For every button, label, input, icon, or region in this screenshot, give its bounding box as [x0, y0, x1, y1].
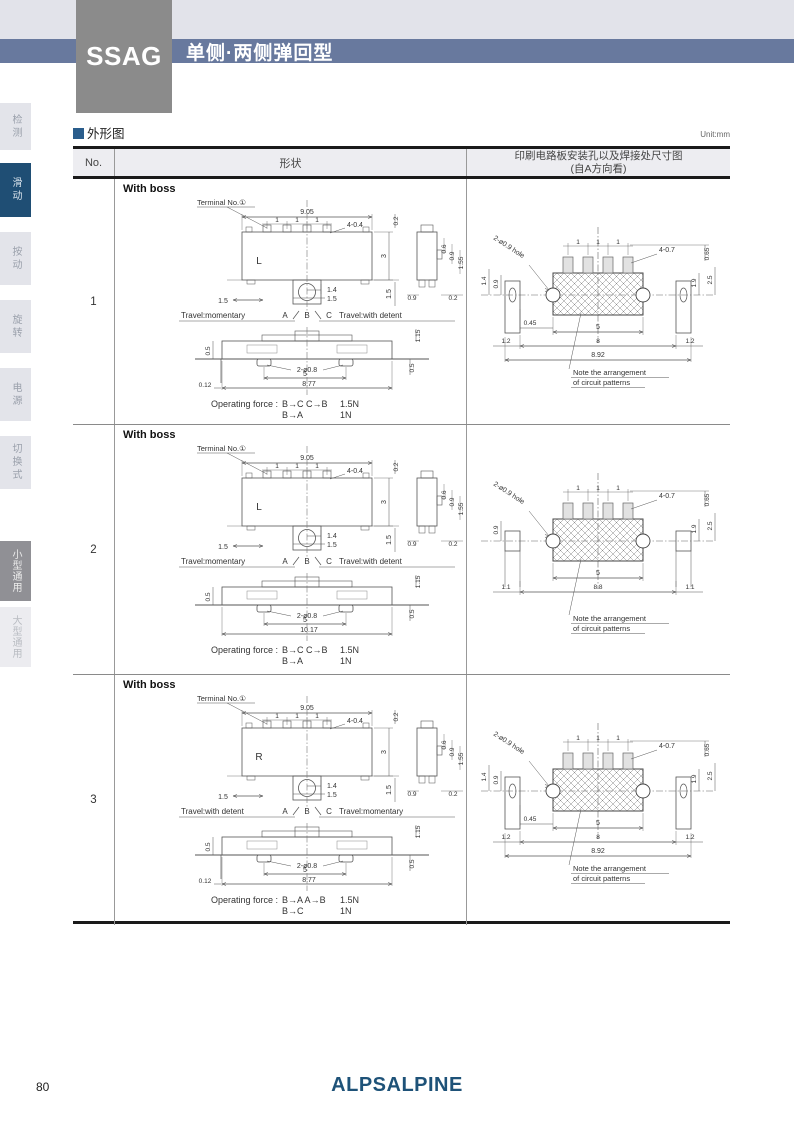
dim-label: 1: [576, 239, 580, 246]
force-moves-2: B→A: [282, 656, 340, 667]
dim-label: 4-0.7: [659, 493, 675, 500]
brand-logo: ALPSALPINE: [297, 1074, 497, 1097]
dim-label: 0.9: [407, 295, 416, 302]
outline-drawing-table: No. 形状 印刷电路板安装孔以及焊接处尺寸图 (自A方向看) 1 With b…: [73, 146, 730, 924]
dim-label: 1.5: [218, 298, 228, 305]
pcb-cell: 2-ø0.9 hole1114-0.70.650.91.92.551.18.81…: [467, 425, 730, 674]
tab-label: 滑动: [8, 177, 23, 203]
tab-label: 小型通用: [8, 549, 23, 593]
dim-label: 5: [303, 617, 307, 624]
dim-label: 1.5: [327, 296, 337, 303]
row-number: 3: [90, 794, 96, 806]
pcb-cell: 2-ø0.9 hole1114-0.70.651.40.91.92.50.455…: [467, 179, 730, 424]
dim-label: 1.2: [685, 338, 694, 345]
position-c: C: [326, 557, 332, 566]
force-prefix: Operating force :: [211, 645, 278, 666]
sidebar-tab-power: 电源: [0, 368, 31, 421]
dim-label: 8.77: [302, 877, 316, 884]
dim-label: 8.92: [591, 848, 605, 855]
dim-label: 1: [275, 713, 279, 720]
section-header: 外形图 Unit:mm: [73, 123, 730, 141]
position-b: B: [304, 311, 309, 320]
dim-label: 1: [295, 713, 299, 720]
dim-label: 5: [303, 371, 307, 378]
dim-label: 5: [303, 867, 307, 874]
travel-left-label: Travel:with detent: [181, 807, 245, 816]
dim-label: 1.5: [327, 542, 337, 549]
dim-label: 0.9: [407, 791, 416, 798]
dim-label: 1: [596, 735, 600, 742]
dim-label: 1: [295, 463, 299, 470]
force-moves-2: B→A: [282, 410, 340, 421]
sidebar-tab-push: 按动: [0, 232, 31, 285]
shape-cell: With boss Terminal No.①9.051114-0.40.2L3…: [115, 179, 467, 424]
dim-label: 1.5: [386, 785, 393, 795]
dim-label: 1.5: [386, 289, 393, 299]
dim-label: 0.45: [524, 320, 537, 327]
dim-label: 1.5: [386, 535, 393, 545]
unit-label: Unit:mm: [700, 130, 730, 139]
dim-label: 3: [381, 750, 388, 754]
table-row-2: 2 With boss Terminal No.①9.051114-0.40.2…: [73, 425, 730, 675]
dim-label: 0.5: [409, 859, 416, 868]
dim-label: 1.4: [481, 276, 488, 285]
bottom-view-drawing: 1.150.52-ø0.8510.170.5: [187, 571, 437, 645]
force-prefix: Operating force :: [211, 399, 278, 420]
front-view-drawing: Terminal No.①9.051114-0.40.2L31.41.51.51…: [167, 440, 467, 572]
dim-label: 4-0.7: [659, 743, 675, 750]
dim-label: 1.5: [218, 794, 228, 801]
tab-label: 按动: [8, 246, 23, 272]
dim-label: 0.65: [704, 247, 711, 260]
note-line2: of circuit patterns: [573, 874, 630, 883]
force-value-1: 1.5N: [340, 895, 359, 905]
dim-label: 1: [315, 713, 319, 720]
series-subtitle: 单侧·两侧弹回型: [186, 38, 333, 65]
travel-right-label: Travel:with detent: [339, 557, 403, 566]
dim-label: 0.2: [393, 712, 400, 721]
note-line1: Note the arrangement: [573, 614, 647, 623]
dim-label: 8: [596, 338, 600, 345]
orientation-letter: L: [256, 502, 262, 513]
front-side-view-svg: Terminal No.①9.051114-0.40.2L31.41.51.51…: [167, 440, 467, 572]
dim-label: 0.9: [493, 775, 500, 784]
position-c: C: [326, 807, 332, 816]
force-moves-2: B→C: [282, 906, 340, 917]
dim-label: 5: [596, 820, 600, 827]
dim-label: 4-0.4: [347, 222, 363, 229]
dim-label: 0.2: [448, 791, 457, 798]
position-a: A: [282, 557, 288, 566]
dim-label: 0.5: [205, 346, 212, 355]
position-c: C: [326, 311, 332, 320]
hole-label: 2-ø0.9 hole: [492, 481, 526, 506]
tab-label: 电源: [8, 382, 23, 408]
dim-label: 0.9: [449, 497, 456, 506]
section-marker-icon: [73, 128, 84, 139]
dim-label: 1.2: [685, 834, 694, 841]
bottom-view-svg: 1.150.52-ø0.858.770.120.5: [187, 821, 437, 895]
dim-label: 0.2: [448, 295, 457, 302]
dim-label: 2.5: [707, 521, 714, 530]
terminal-no-label: Terminal No.①: [197, 694, 246, 703]
note-line2: of circuit patterns: [573, 624, 630, 633]
note-line1: Note the arrangement: [573, 368, 647, 377]
row-number: 2: [90, 544, 96, 556]
dim-label: 1.5: [327, 792, 337, 799]
section-title: 外形图: [87, 127, 125, 141]
pcb-pattern-drawing: 2-ø0.9 hole1114-0.70.651.40.91.92.50.455…: [473, 713, 723, 893]
dim-label: 5: [596, 324, 600, 331]
dim-label: 3: [381, 254, 388, 258]
col-header-no: No.: [73, 149, 115, 176]
dim-label: 1: [576, 485, 580, 492]
dim-label: 0.2: [393, 462, 400, 471]
dim-label: 4-0.4: [347, 718, 363, 725]
dim-label: 0.9: [407, 541, 416, 548]
front-side-view-svg: Terminal No.①9.051114-0.40.2R31.41.51.51…: [167, 690, 467, 822]
dim-label: 1: [315, 217, 319, 224]
dim-label: 0.6: [441, 740, 448, 749]
dim-label: 1: [616, 239, 620, 246]
table-row-3: 3 With boss Terminal No.①9.051114-0.40.2…: [73, 675, 730, 925]
tab-label: 旋转: [8, 314, 23, 340]
dim-label: 1.15: [415, 825, 422, 838]
dim-label: 1.9: [691, 278, 698, 287]
dim-label: 1: [275, 217, 279, 224]
sidebar-tab-small-general: 小型通用: [0, 541, 31, 601]
terminal-no-label: Terminal No.①: [197, 198, 246, 207]
dim-label: 8: [596, 834, 600, 841]
dim-label: 1.9: [691, 524, 698, 533]
dim-label: 8.8: [593, 584, 602, 591]
position-a: A: [282, 807, 288, 816]
row-number: 1: [90, 296, 96, 308]
dim-label: 0.45: [524, 816, 537, 823]
force-value-1: 1.5N: [340, 399, 359, 409]
note-line2: of circuit patterns: [573, 378, 630, 387]
dim-label: 0.5: [205, 842, 212, 851]
dim-label: 1.1: [685, 584, 694, 591]
dim-label: 1.55: [458, 256, 465, 269]
travel-right-label: Travel:with detent: [339, 311, 403, 320]
dim-label: 1: [576, 735, 580, 742]
force-moves-1: B→C C→B: [282, 645, 340, 656]
pcb-cell: 2-ø0.9 hole1114-0.70.651.40.91.92.50.455…: [467, 675, 730, 925]
dim-label: 0.5: [409, 363, 416, 372]
position-b: B: [304, 807, 309, 816]
operating-force: Operating force : B→A A→B1.5N B→C1N: [211, 895, 359, 916]
force-moves-1: B→C C→B: [282, 399, 340, 410]
bottom-view-svg: 1.150.52-ø0.858.770.120.5: [187, 325, 437, 399]
series-code: SSAG: [86, 41, 162, 72]
operating-force: Operating force : B→C C→B1.5N B→A1N: [211, 645, 359, 666]
dim-label: 1.5: [218, 544, 228, 551]
dim-label: 1: [315, 463, 319, 470]
dim-label: 0.9: [449, 747, 456, 756]
orientation-letter: R: [255, 752, 262, 763]
table-row-1: 1 With boss Terminal No.①9.051114-0.40.2…: [73, 179, 730, 425]
pcb-pattern-svg: 2-ø0.9 hole1114-0.70.650.91.92.551.18.81…: [473, 463, 723, 643]
front-view-drawing: Terminal No.①9.051114-0.40.2L31.41.51.51…: [167, 194, 467, 326]
dim-label: 1: [275, 463, 279, 470]
col-header-pcb: 印刷电路板安装孔以及焊接处尺寸图 (自A方向看): [467, 149, 730, 176]
travel-left-label: Travel:momentary: [181, 311, 245, 320]
dim-label: 1.15: [415, 329, 422, 342]
dim-label: 4-0.4: [347, 468, 363, 475]
dim-label: 2.5: [707, 275, 714, 284]
dim-label: 1: [616, 485, 620, 492]
sidebar-tab-slide-active: 滑动: [0, 163, 31, 217]
dim-label: 0.12: [199, 382, 212, 389]
dim-label: 0.5: [409, 609, 416, 618]
sidebar-tab-toggle: 切换式: [0, 436, 31, 489]
travel-left-label: Travel:momentary: [181, 557, 245, 566]
dim-label: 0.9: [493, 279, 500, 288]
force-moves-1: B→A A→B: [282, 895, 340, 906]
dim-label: 1: [596, 239, 600, 246]
dim-label: 1.9: [691, 774, 698, 783]
dim-label: 1.55: [458, 502, 465, 515]
sidebar-tab-rotary: 旋转: [0, 300, 31, 353]
shape-cell: With boss Terminal No.①9.051114-0.40.2L3…: [115, 425, 467, 674]
dim-label: 0.6: [441, 244, 448, 253]
dim-label: 1: [616, 735, 620, 742]
dim-label: 0.9: [493, 525, 500, 534]
dim-label: 5: [596, 570, 600, 577]
pcb-pattern-drawing: 2-ø0.9 hole1114-0.70.650.91.92.551.18.81…: [473, 463, 723, 643]
sidebar-tab-inspection: 检测: [0, 103, 31, 150]
dim-label: 0.12: [199, 878, 212, 885]
dim-label: 0.2: [448, 541, 457, 548]
series-code-box: SSAG: [76, 0, 172, 113]
dim-label: 1.1: [501, 584, 510, 591]
force-value-2: 1N: [340, 410, 352, 420]
col-header-pcb-line2: (自A方向看): [515, 163, 683, 176]
front-view-drawing: Terminal No.①9.051114-0.40.2R31.41.51.51…: [167, 690, 467, 822]
dim-label: 1: [596, 485, 600, 492]
dim-label: 0.9: [449, 251, 456, 260]
pcb-pattern-drawing: 2-ø0.9 hole1114-0.70.651.40.91.92.50.455…: [473, 217, 723, 397]
tab-label: 切换式: [8, 443, 23, 482]
travel-right-label: Travel:momentary: [339, 807, 403, 816]
dim-label: 1.2: [501, 338, 510, 345]
dim-label: 1.4: [327, 533, 337, 540]
table-header-row: No. 形状 印刷电路板安装孔以及焊接处尺寸图 (自A方向看): [73, 149, 730, 179]
bottom-view-svg: 1.150.52-ø0.8510.170.5: [187, 571, 437, 645]
dim-label: 0.6: [441, 490, 448, 499]
dim-label: 1.4: [327, 287, 337, 294]
col-header-shape: 形状: [115, 149, 467, 176]
dim-label: 1.15: [415, 575, 422, 588]
front-side-view-svg: Terminal No.①9.051114-0.40.2L31.41.51.51…: [167, 194, 467, 326]
dim-label: 0.2: [393, 216, 400, 225]
orientation-letter: L: [256, 256, 262, 267]
tab-label: 检测: [8, 114, 23, 140]
position-b: B: [304, 557, 309, 566]
dim-label: 1: [295, 217, 299, 224]
hole-label: 2-ø0.9 hole: [492, 235, 526, 260]
pcb-pattern-svg: 2-ø0.9 hole1114-0.70.651.40.91.92.50.455…: [473, 713, 723, 893]
force-value-1: 1.5N: [340, 645, 359, 655]
dim-label: 8.77: [302, 381, 316, 388]
dim-label: 4-0.7: [659, 247, 675, 254]
dim-label: 0.65: [704, 743, 711, 756]
dim-label: 1.2: [501, 834, 510, 841]
pcb-pattern-svg: 2-ø0.9 hole1114-0.70.651.40.91.92.50.455…: [473, 217, 723, 397]
dim-label: 1.4: [481, 772, 488, 781]
bottom-view-drawing: 1.150.52-ø0.858.770.120.5: [187, 325, 437, 399]
force-value-2: 1N: [340, 906, 352, 916]
dim-label: 0.5: [205, 592, 212, 601]
col-header-pcb-line1: 印刷电路板安装孔以及焊接处尺寸图: [515, 150, 683, 163]
position-a: A: [282, 311, 288, 320]
dim-label: 1.4: [327, 783, 337, 790]
tab-label: 大型通用: [8, 615, 23, 659]
force-value-2: 1N: [340, 656, 352, 666]
dim-label: 0.65: [704, 493, 711, 506]
shape-cell: With boss Terminal No.①9.051114-0.40.2R3…: [115, 675, 467, 925]
sidebar-tab-large-general: 大型通用: [0, 607, 31, 667]
force-prefix: Operating force :: [211, 895, 278, 916]
operating-force: Operating force : B→C C→B1.5N B→A1N: [211, 399, 359, 420]
bottom-view-drawing: 1.150.52-ø0.858.770.120.5: [187, 821, 437, 895]
dim-label: 8.92: [591, 352, 605, 359]
dim-label: 2.5: [707, 771, 714, 780]
page-number: 80: [36, 1080, 49, 1094]
dim-label: 10.17: [300, 627, 318, 634]
dim-label: 3: [381, 500, 388, 504]
note-line1: Note the arrangement: [573, 864, 647, 873]
hole-label: 2-ø0.9 hole: [492, 731, 526, 756]
terminal-no-label: Terminal No.①: [197, 444, 246, 453]
dim-label: 1.55: [458, 752, 465, 765]
